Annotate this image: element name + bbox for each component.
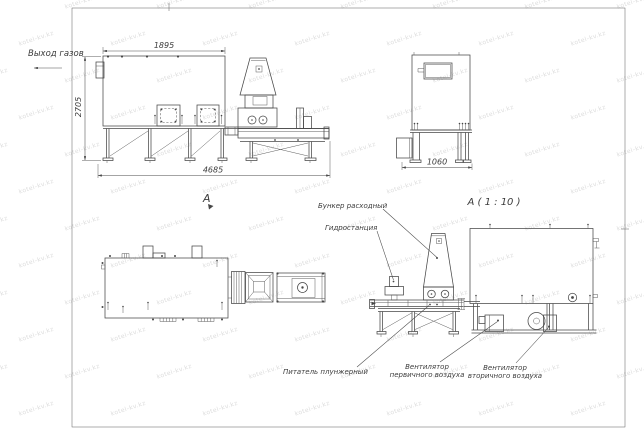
side-view: 1060: [397, 52, 473, 170]
dim-front-height: 2705: [74, 57, 101, 161]
svg-text:1895: 1895: [154, 41, 174, 50]
section-view: А ( 1 : 10 ): [283, 197, 600, 380]
hopper-label: Бункер расходный: [318, 202, 388, 210]
front-support-frame: [103, 129, 227, 164]
section-secondary-fan: [528, 313, 557, 332]
front-hopper: [238, 58, 277, 127]
plan-hopper-top: [246, 273, 274, 303]
section-hopper: [424, 234, 454, 301]
front-view: Выход газов 1895 2705 4685: [28, 41, 330, 178]
feeder-label: Питатель плунжерный: [283, 368, 368, 376]
plan-bottom-combs: [160, 318, 214, 322]
dim-side-width: 1060: [402, 158, 472, 171]
plan-right-unit: [276, 272, 325, 302]
section-primary-fan: [479, 315, 504, 332]
plan-anchors: [107, 260, 223, 313]
view-a-label: А: [202, 192, 211, 205]
secondary-fan-label-1: Вентилятор: [483, 364, 527, 372]
section-hydrostation: [385, 277, 404, 301]
primary-fan-label-2: первичного воздуха: [390, 371, 465, 379]
section-feeder-trestle: [377, 309, 460, 338]
side-anchor-bolts: [414, 123, 470, 130]
front-hatch-2: [194, 105, 222, 126]
front-hatch-1: [154, 105, 183, 126]
sheet-frame: [72, 3, 629, 427]
plan-top-comb: [122, 254, 129, 259]
drawing-sheet: kotel-kv.kzkotel-kv.kzkotel-kv.kzkotel-k…: [0, 0, 644, 430]
gas-outlet-label: Выход газов: [28, 49, 84, 59]
section-title: А ( 1 : 10 ): [467, 197, 521, 208]
secondary-fan-label-2: вторичного воздуха: [468, 372, 542, 380]
svg-text:2705: 2705: [74, 97, 83, 117]
plan-view: А: [102, 192, 326, 322]
view-a-arrow: [208, 204, 214, 210]
svg-text:4685: 4685: [203, 166, 223, 175]
plan-feeder-flange: [232, 272, 246, 304]
hydrostation-label: Гидростанция: [325, 224, 377, 232]
primary-fan-label-1: Вентилятор: [405, 363, 449, 371]
dim-front-width-top: 1895: [103, 41, 225, 54]
section-feeder: [370, 299, 481, 310]
dim-front-total-length: 4685: [98, 141, 330, 178]
svg-text:1060: 1060: [427, 158, 447, 167]
technical-drawing: Выход газов 1895 2705 4685: [0, 0, 644, 430]
